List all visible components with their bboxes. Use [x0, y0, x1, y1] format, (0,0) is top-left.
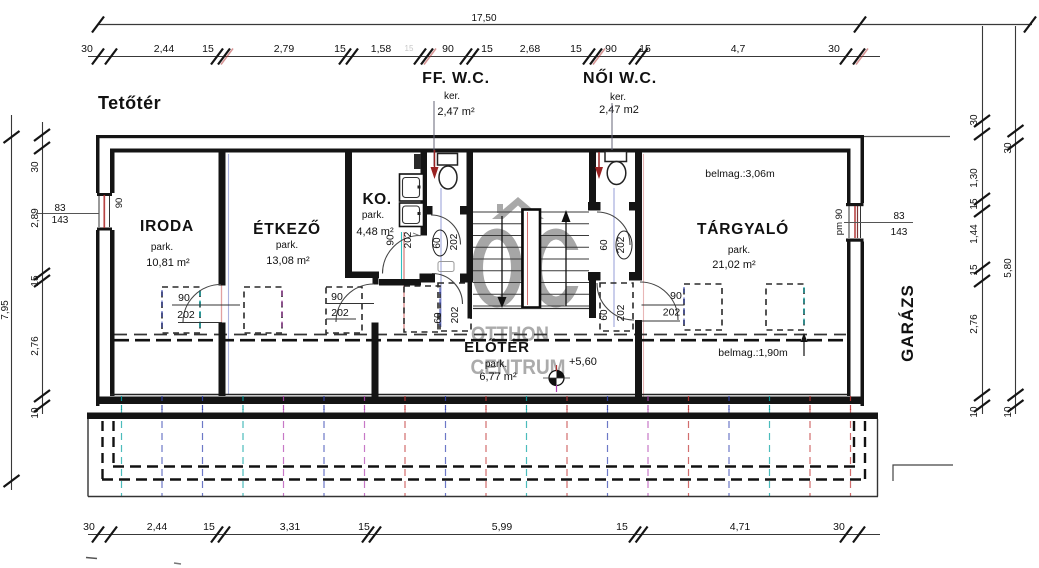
svg-text:17,50: 17,50 — [471, 13, 496, 24]
svg-text:90: 90 — [114, 198, 125, 209]
svg-text:1,30: 1,30 — [969, 168, 980, 188]
svg-text:60: 60 — [599, 239, 610, 251]
svg-text:2,44: 2,44 — [147, 521, 168, 533]
svg-text:2,47 m²: 2,47 m² — [437, 106, 475, 118]
svg-text:6,77 m²: 6,77 m² — [479, 371, 517, 383]
svg-text:202: 202 — [449, 233, 460, 250]
svg-text:2,76: 2,76 — [30, 336, 41, 356]
svg-text:ker.: ker. — [444, 91, 460, 102]
svg-text:202: 202 — [331, 307, 349, 319]
svg-text:15: 15 — [202, 43, 214, 55]
svg-text:park.: park. — [276, 240, 298, 251]
svg-text:1,44: 1,44 — [969, 224, 980, 244]
svg-text:belmag.:1,90m: belmag.:1,90m — [718, 347, 788, 359]
svg-text:KO.: KO. — [362, 191, 391, 208]
svg-text:30: 30 — [828, 43, 840, 55]
svg-text:7,95: 7,95 — [0, 300, 11, 320]
svg-text:pm 90: pm 90 — [834, 209, 845, 235]
svg-text:202: 202 — [177, 309, 195, 321]
svg-text:90: 90 — [331, 291, 343, 303]
svg-text:21,02 m²: 21,02 m² — [712, 259, 756, 271]
svg-text:4,71: 4,71 — [730, 521, 751, 533]
svg-text:13,08 m²: 13,08 m² — [266, 255, 310, 267]
svg-text:15: 15 — [334, 43, 346, 55]
svg-text:NŐI W.C.: NŐI W.C. — [583, 68, 657, 87]
svg-text:IRODA: IRODA — [140, 218, 194, 235]
svg-text:belmag.:3,06m: belmag.:3,06m — [705, 168, 775, 180]
svg-text:TÁRGYALÓ: TÁRGYALÓ — [697, 220, 789, 238]
svg-text:ÉTKEZŐ: ÉTKEZŐ — [253, 220, 321, 238]
svg-text:park.: park. — [728, 245, 750, 256]
svg-text:15: 15 — [570, 43, 582, 55]
svg-text:10: 10 — [969, 406, 980, 418]
svg-text:4,48 m²: 4,48 m² — [356, 226, 394, 238]
svg-text:park.: park. — [151, 242, 173, 253]
svg-text:FF. W.C.: FF. W.C. — [422, 70, 490, 87]
svg-text:Tetőtér: Tetőtér — [98, 93, 161, 113]
svg-text:30: 30 — [81, 43, 93, 55]
svg-text:30: 30 — [833, 521, 845, 533]
svg-text:202: 202 — [450, 306, 461, 323]
svg-text:202: 202 — [403, 231, 414, 248]
svg-text:30: 30 — [30, 161, 41, 173]
svg-text:ELŐTÉR: ELŐTÉR — [464, 338, 530, 356]
svg-text:30: 30 — [969, 114, 980, 126]
svg-text:60: 60 — [599, 309, 610, 321]
svg-text:2,68: 2,68 — [520, 43, 541, 55]
svg-text:202: 202 — [616, 304, 627, 321]
svg-text:+5,60: +5,60 — [569, 356, 597, 368]
svg-text:15: 15 — [405, 44, 414, 53]
svg-text:2,89: 2,89 — [30, 208, 41, 228]
svg-text:5,80: 5,80 — [1003, 258, 1014, 278]
svg-text:90: 90 — [605, 43, 617, 55]
svg-text:30: 30 — [83, 521, 95, 533]
svg-text:143: 143 — [52, 215, 69, 226]
svg-text:202: 202 — [663, 307, 681, 319]
svg-text:2,47 m2: 2,47 m2 — [599, 104, 639, 116]
svg-text:202: 202 — [616, 236, 627, 253]
svg-text:2,76: 2,76 — [969, 314, 980, 334]
svg-text:15: 15 — [969, 198, 980, 210]
svg-text:4,7: 4,7 — [731, 43, 746, 55]
svg-text:143: 143 — [891, 227, 908, 238]
svg-text:15: 15 — [203, 521, 215, 533]
svg-text:15: 15 — [616, 521, 628, 533]
svg-text:GARÁZS: GARÁZS — [898, 284, 917, 362]
svg-text:3,31: 3,31 — [280, 521, 301, 533]
svg-text:park.: park. — [485, 359, 507, 370]
svg-text:60: 60 — [432, 237, 443, 249]
svg-text:5,99: 5,99 — [492, 521, 513, 533]
svg-text:10,81 m²: 10,81 m² — [146, 257, 190, 269]
svg-text:15: 15 — [639, 43, 651, 55]
svg-text:90: 90 — [178, 292, 190, 304]
svg-text:15: 15 — [969, 264, 980, 276]
svg-text:10: 10 — [1003, 406, 1014, 418]
svg-text:park.: park. — [362, 210, 384, 221]
svg-text:30: 30 — [1003, 142, 1014, 154]
svg-text:83: 83 — [893, 211, 905, 222]
svg-text:2,79: 2,79 — [274, 43, 295, 55]
svg-text:60: 60 — [433, 312, 444, 324]
svg-text:15: 15 — [30, 275, 41, 287]
svg-text:15: 15 — [358, 521, 370, 533]
svg-text:90: 90 — [442, 43, 454, 55]
svg-text:10: 10 — [30, 407, 41, 419]
svg-text:90: 90 — [670, 290, 682, 302]
svg-text:15: 15 — [481, 43, 493, 55]
svg-text:2,44: 2,44 — [154, 43, 175, 55]
svg-text:83: 83 — [54, 203, 66, 214]
svg-text:1,58: 1,58 — [371, 43, 392, 55]
svg-text:ker.: ker. — [610, 92, 626, 103]
